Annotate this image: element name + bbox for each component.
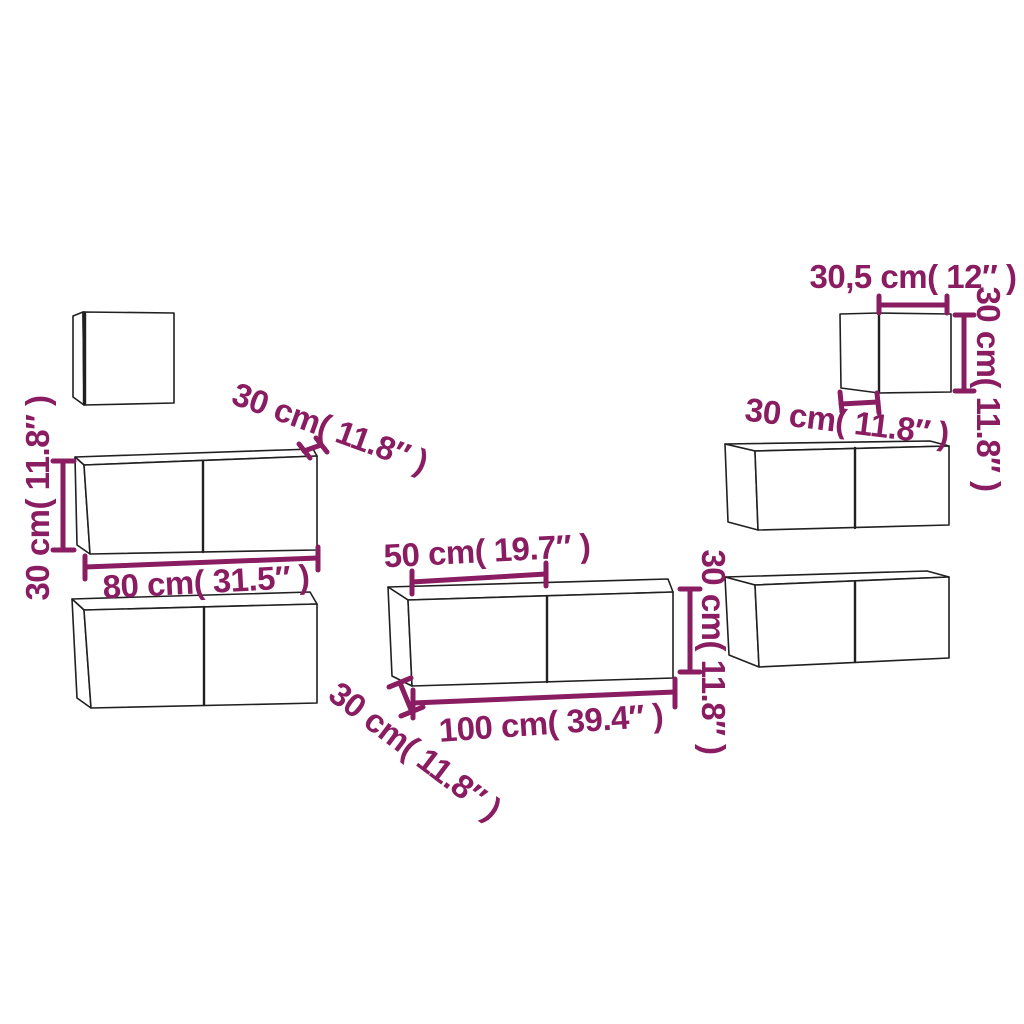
cabinet-top-left-square: [73, 312, 174, 405]
cabinet-bottom-right: [725, 571, 949, 667]
cabinet-middle-right: [725, 441, 949, 530]
cabinet-bottom-left: [72, 592, 317, 708]
bracket-small-width: [879, 296, 947, 313]
label-center-height: 30 cm( 11.8″ ): [694, 549, 732, 754]
cabinet-middle-left: [75, 449, 317, 554]
label-left-height: 30 cm( 11.8″ ): [19, 395, 57, 600]
cabinet-center: [388, 579, 673, 686]
label-small-height: 30 cm( 11.8″ ): [969, 286, 1007, 491]
dimension-diagram: 30,5 cm( 12″ ) 30 cm( 11.8″ ) 30 cm( 11.…: [0, 0, 1024, 1024]
diagram-canvas: [0, 0, 1024, 1024]
cabinet-top-right-square: [840, 313, 951, 393]
